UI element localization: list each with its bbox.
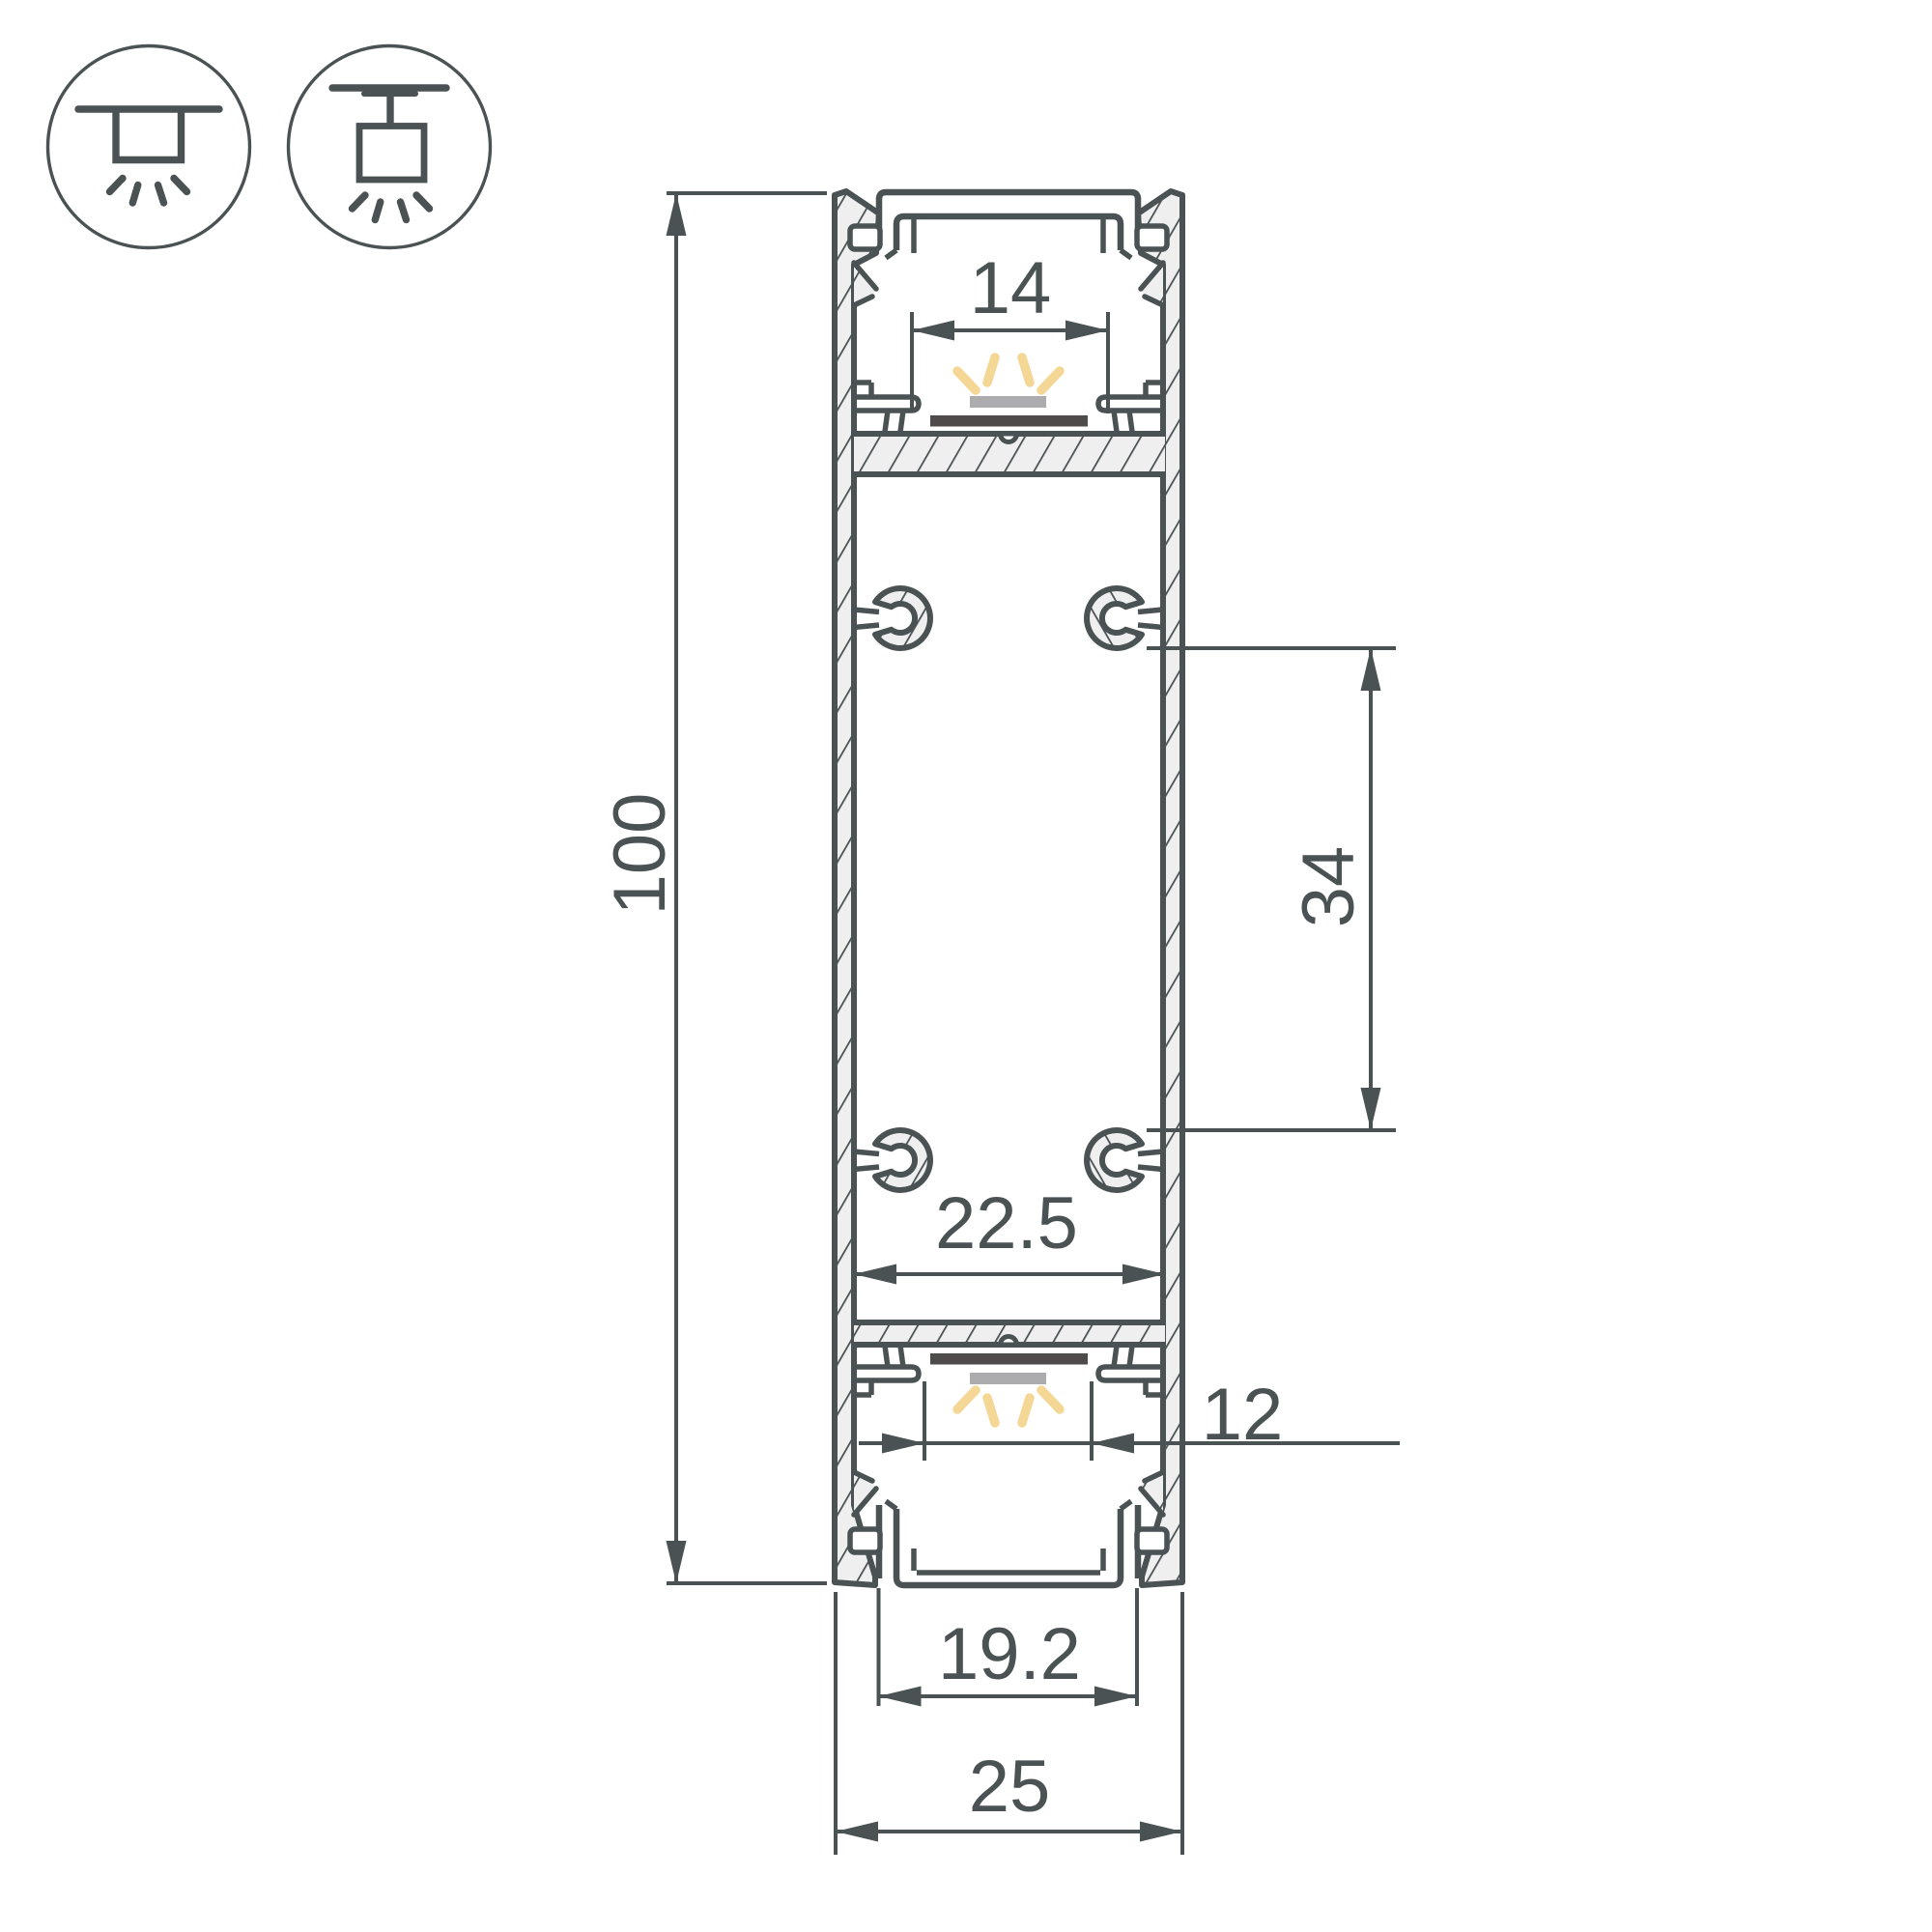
svg-text:22.5: 22.5 bbox=[935, 1182, 1078, 1264]
svg-text:25: 25 bbox=[969, 1746, 1051, 1828]
svg-text:34: 34 bbox=[1288, 846, 1370, 928]
svg-text:100: 100 bbox=[599, 793, 681, 916]
svg-text:19.2: 19.2 bbox=[938, 1613, 1081, 1695]
svg-text:12: 12 bbox=[1202, 1374, 1284, 1456]
svg-text:14: 14 bbox=[970, 247, 1052, 329]
